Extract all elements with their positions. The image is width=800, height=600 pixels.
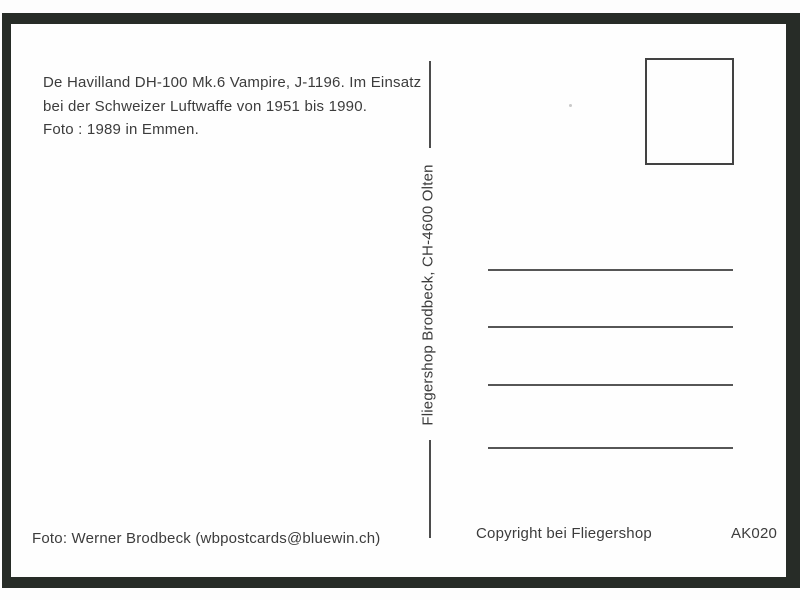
copyright-text: Copyright bei Fliegershop	[476, 525, 652, 542]
photo-credit: Foto: Werner Brodbeck (wbpostcards@bluew…	[32, 530, 380, 547]
address-line-4	[488, 447, 733, 449]
address-line-2	[488, 326, 733, 328]
address-line-3	[488, 384, 733, 386]
postcard-scan: De Havilland DH-100 Mk.6 Vampire, J-1196…	[0, 0, 800, 600]
address-line-1	[488, 269, 733, 271]
address-lines	[0, 0, 800, 600]
catalog-number: AK020	[731, 525, 777, 542]
